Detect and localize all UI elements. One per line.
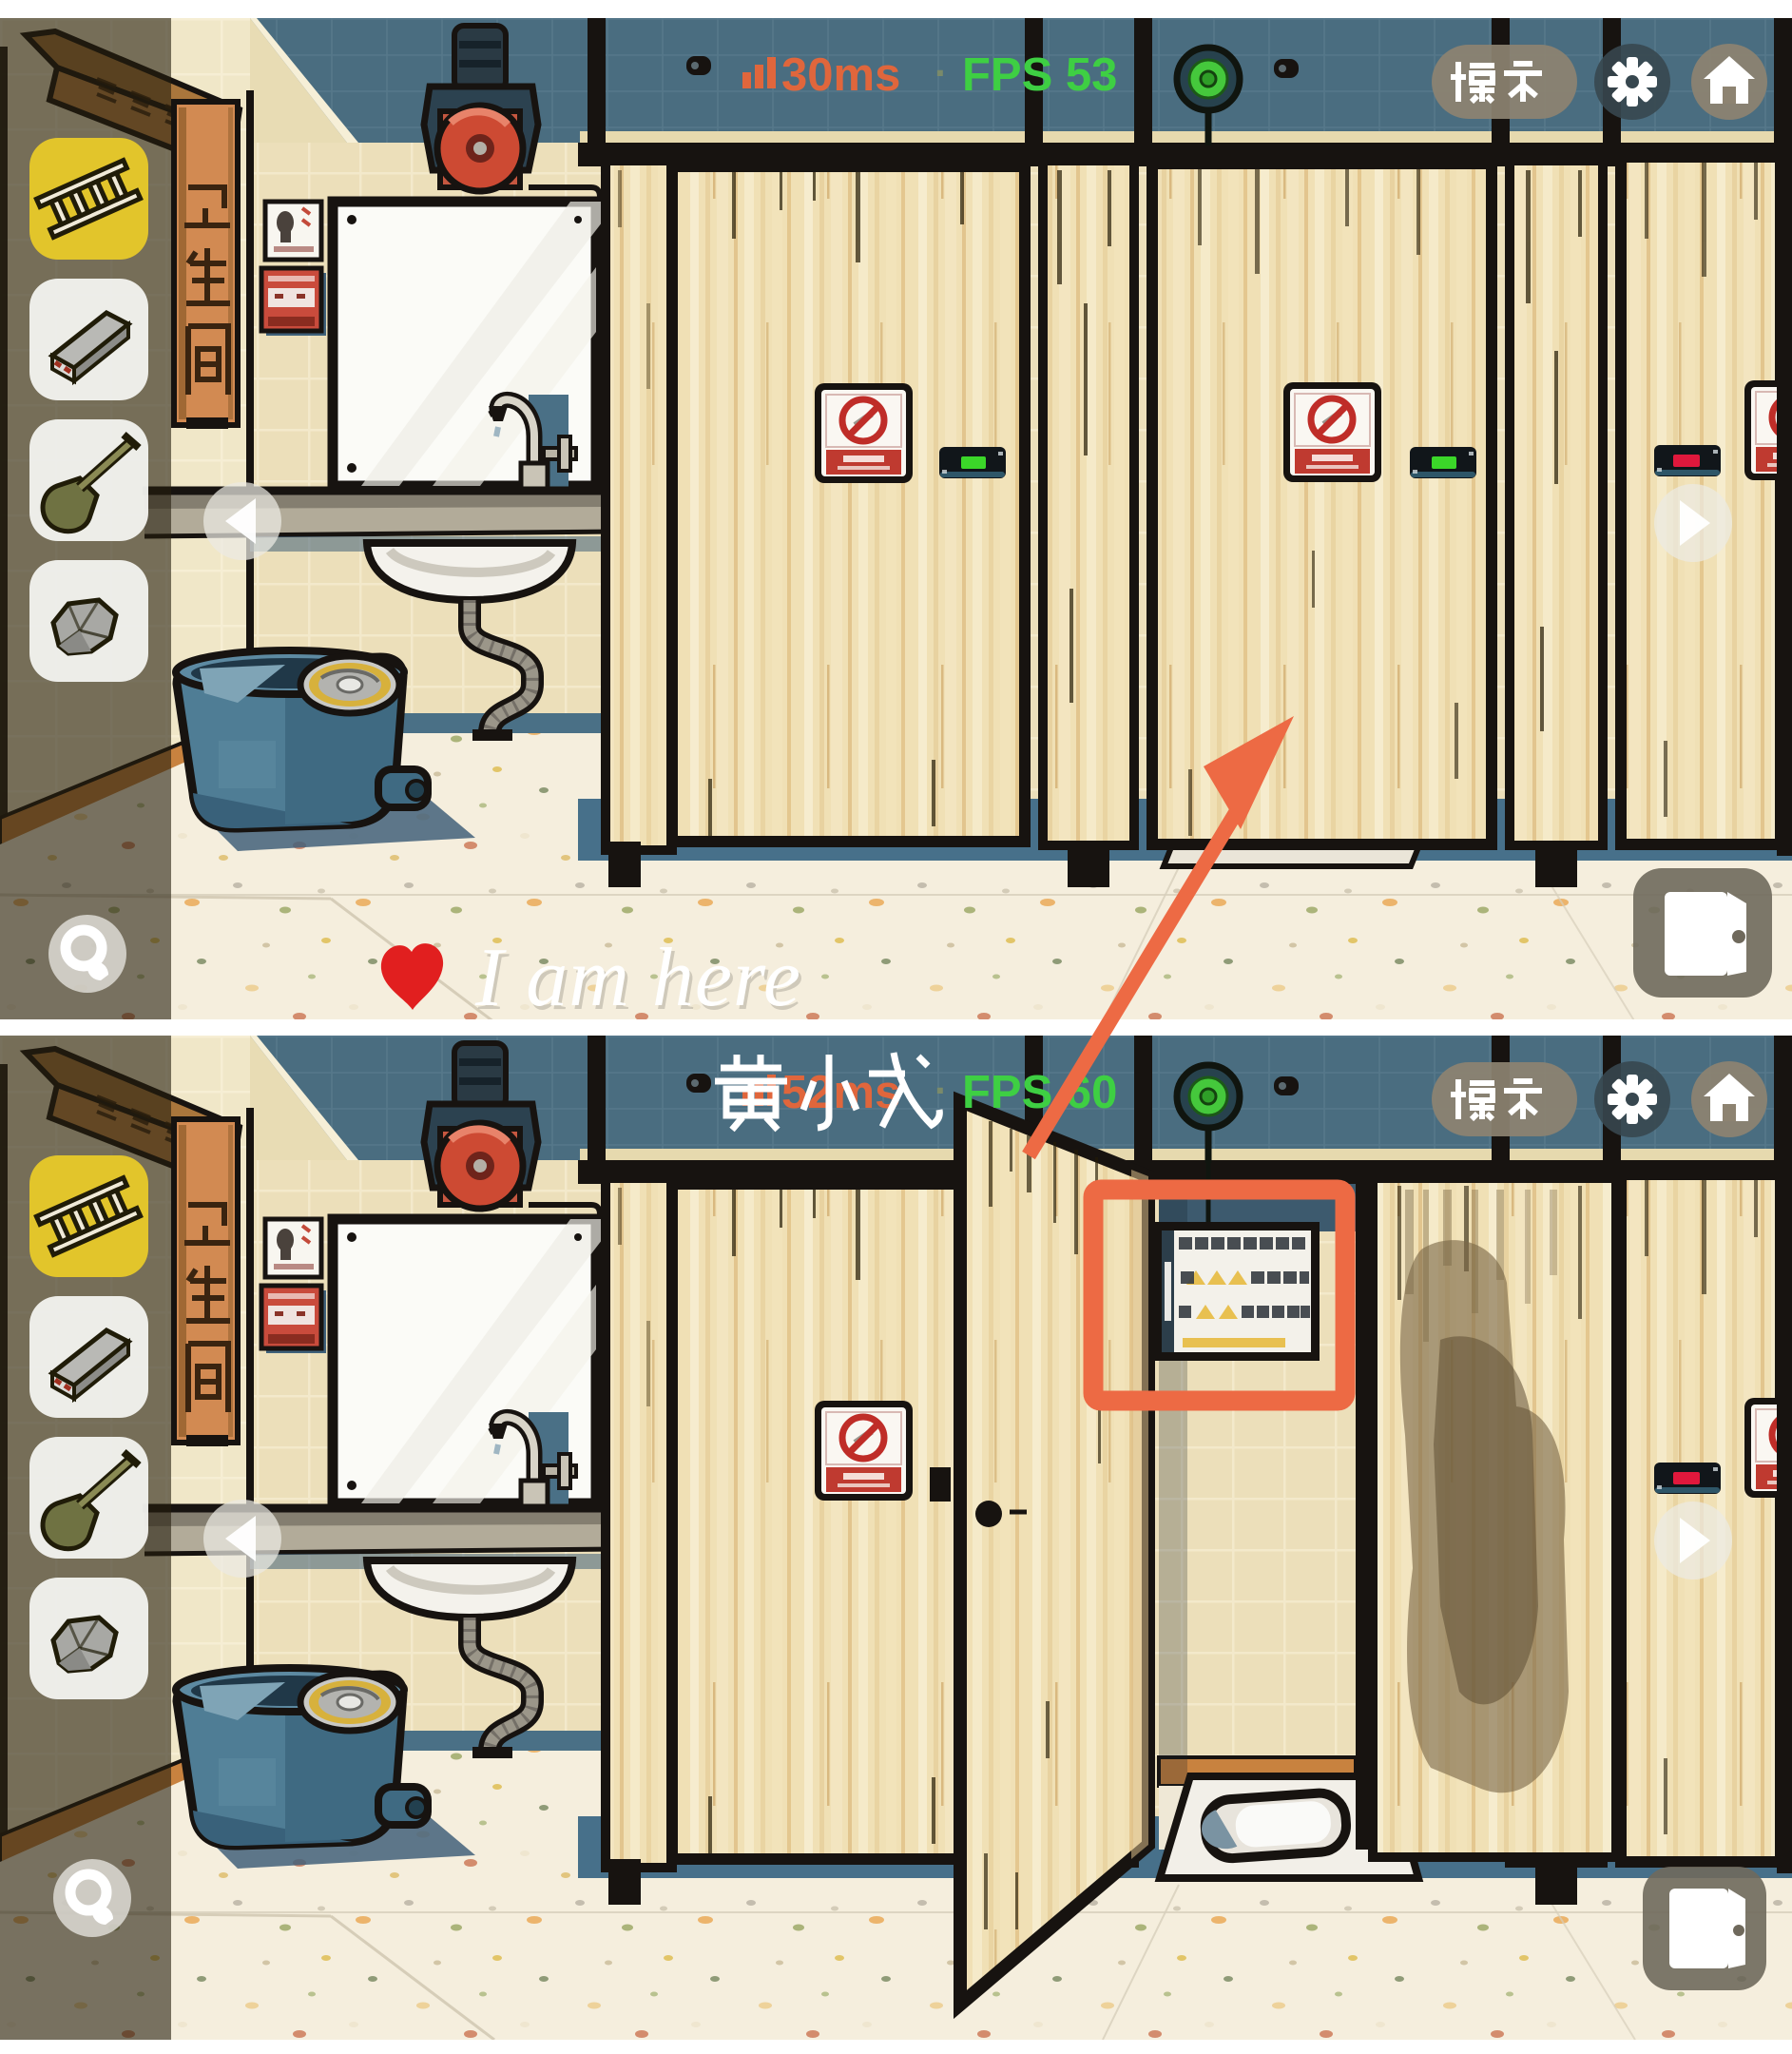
- svg-text:FPS 60: FPS 60: [962, 1067, 1117, 1118]
- svg-text:I am here: I am here: [474, 932, 801, 1024]
- svg-text:30ms: 30ms: [781, 49, 900, 101]
- svg-text:·: ·: [935, 50, 948, 95]
- svg-text:·: ·: [935, 1068, 948, 1113]
- svg-text:FPS 53: FPS 53: [962, 49, 1117, 101]
